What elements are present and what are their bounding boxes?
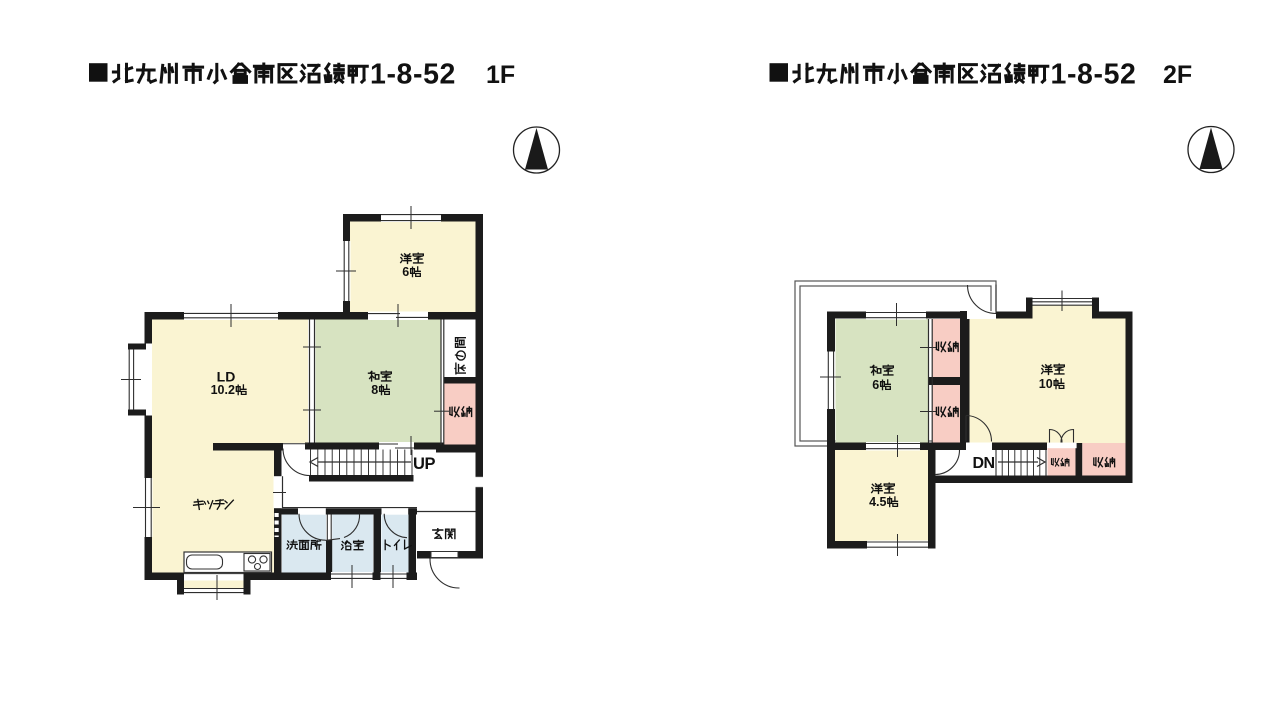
svg-text:4.5: 4.5 bbox=[869, 495, 886, 509]
svg-text:1-8-52: 1-8-52 bbox=[1051, 59, 1137, 91]
svg-text:10: 10 bbox=[1039, 377, 1053, 391]
svg-text:2F: 2F bbox=[1163, 61, 1192, 89]
svg-text:1F: 1F bbox=[486, 61, 515, 89]
svg-text:UP: UP bbox=[413, 455, 435, 473]
svg-text:8: 8 bbox=[371, 383, 378, 397]
svg-text:1-8-52: 1-8-52 bbox=[370, 59, 456, 91]
svg-text:DN: DN bbox=[972, 455, 994, 472]
svg-text:10.2: 10.2 bbox=[211, 383, 235, 397]
svg-text:6: 6 bbox=[402, 265, 409, 279]
svg-text:6: 6 bbox=[872, 378, 879, 392]
